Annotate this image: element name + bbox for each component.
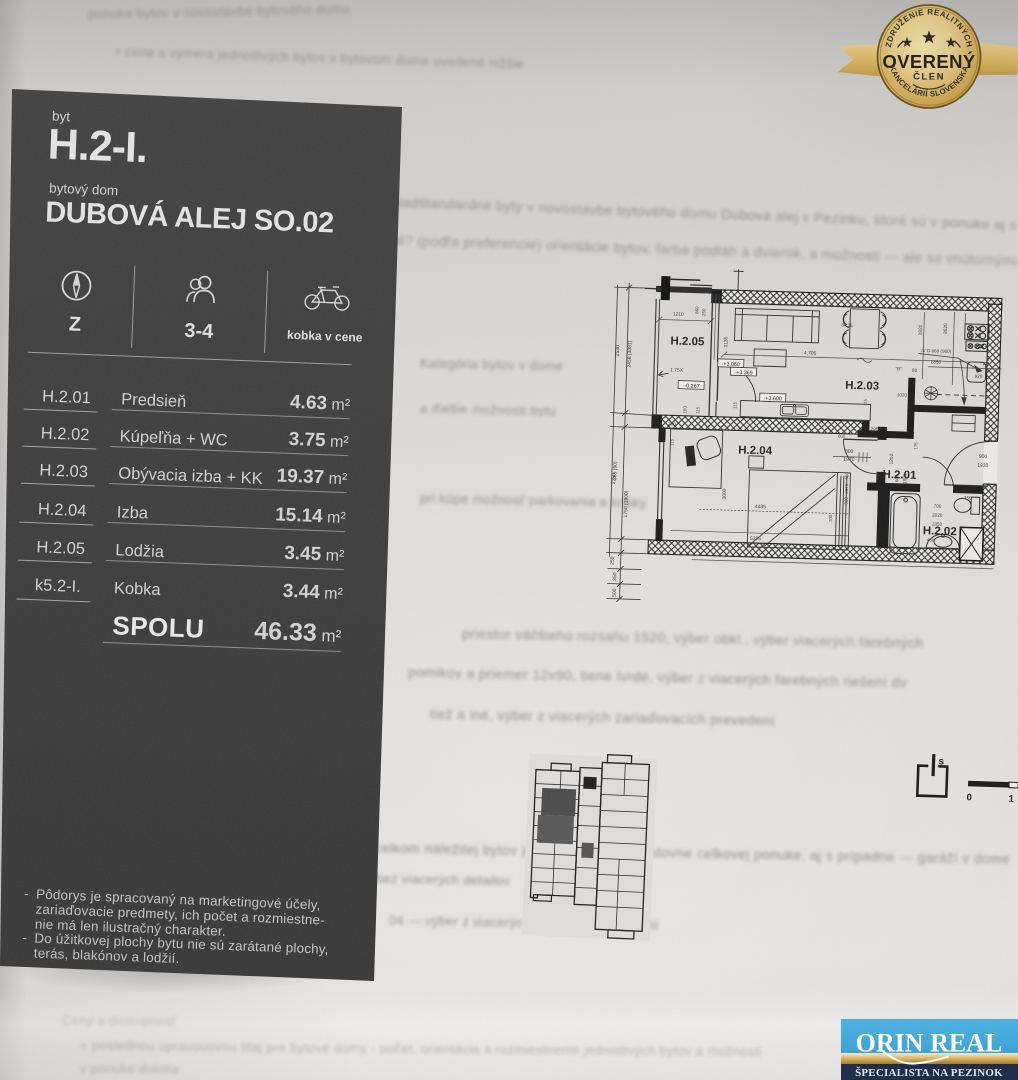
svg-text:2950: 2950 (870, 426, 881, 432)
svg-text:2020: 2020 (932, 512, 943, 517)
svg-text:600: 600 (838, 434, 846, 439)
svg-text:2350: 2350 (932, 521, 943, 526)
svg-text:2250: 2250 (611, 473, 617, 485)
svg-text:115: 115 (876, 473, 881, 480)
svg-text:1850: 1850 (930, 359, 941, 365)
svg-text:800: 800 (845, 449, 854, 455)
svg-text:84.35: 84.35 (841, 323, 853, 328)
svg-text:ČLEN: ČLEN (913, 71, 945, 83)
svg-text:IV D 660 (960): IV D 660 (960) (921, 348, 951, 354)
svg-text:2620: 2620 (943, 323, 949, 334)
svg-text:H.2.03: H.2.03 (845, 380, 879, 393)
svg-text:750: 750 (964, 495, 972, 500)
svg-text:1: 1 (1008, 794, 1014, 805)
svg-text:3135: 3135 (723, 336, 729, 347)
svg-text:1970: 1970 (843, 457, 855, 463)
svg-text:1920: 1920 (918, 324, 924, 335)
svg-text:920: 920 (975, 374, 983, 379)
svg-text:·-0.267: ·-0.267 (682, 383, 699, 390)
svg-text:175: 175 (913, 442, 918, 450)
svg-text:1930: 1930 (902, 473, 907, 484)
svg-text:"B": "B" (895, 366, 902, 371)
svg-text:290: 290 (668, 421, 676, 426)
svg-text:115: 115 (695, 406, 700, 414)
svg-text:·+3.600: ·+3.600 (763, 396, 782, 403)
svg-text:s: s (938, 756, 944, 767)
svg-text:1202: 1202 (889, 453, 895, 464)
svg-text:0: 0 (966, 792, 972, 803)
svg-text:ŠPECIALISTA NA PEZINOK: ŠPECIALISTA NA PEZINOK (855, 1066, 1003, 1079)
svg-text:1750 (1900): 1750 (1900) (623, 490, 630, 517)
svg-text:500: 500 (612, 588, 618, 597)
svg-text:OVERENÝ: OVERENÝ (882, 51, 976, 72)
svg-text:1930: 1930 (977, 463, 989, 469)
svg-text:2530: 2530 (615, 345, 621, 357)
svg-text:1210: 1210 (673, 311, 684, 317)
svg-text:350: 350 (612, 572, 618, 581)
svg-text:200: 200 (828, 514, 833, 522)
svg-text:980: 980 (844, 496, 849, 504)
svg-text:80: 80 (912, 368, 918, 373)
svg-text:1.75X: 1.75X (670, 367, 684, 373)
svg-text:2070: 2070 (844, 483, 849, 493)
svg-text:H.2.04: H.2.04 (738, 444, 773, 457)
svg-text:H.2.02: H.2.02 (923, 525, 957, 538)
svg-text:960: 960 (844, 472, 849, 480)
svg-text:2458 (3081): 2458 (3081) (627, 340, 634, 367)
svg-text:115: 115 (669, 438, 674, 446)
svg-text:H.2.05: H.2.05 (670, 335, 705, 348)
svg-text:450: 450 (927, 537, 935, 542)
svg-text:ORIN REAL: ORIN REAL (856, 1029, 1003, 1058)
svg-text:900: 900 (979, 454, 988, 460)
svg-text:115: 115 (732, 401, 737, 409)
svg-text:115: 115 (863, 398, 868, 405)
svg-text:250: 250 (610, 556, 616, 565)
svg-text:860: 860 (694, 306, 699, 314)
svg-text:700: 700 (934, 503, 942, 508)
svg-text:·+3.369: ·+3.369 (734, 370, 753, 377)
svg-text:1020: 1020 (897, 392, 908, 397)
svg-text:3000: 3000 (722, 488, 728, 500)
svg-text:H.2.01: H.2.01 (882, 469, 917, 482)
svg-text:4.705: 4.705 (804, 350, 817, 356)
svg-text:4485: 4485 (755, 504, 767, 510)
svg-text:5295: 5295 (750, 536, 762, 542)
svg-text:250: 250 (701, 308, 706, 316)
svg-text:160: 160 (682, 406, 687, 414)
svg-text:600: 600 (894, 474, 899, 482)
